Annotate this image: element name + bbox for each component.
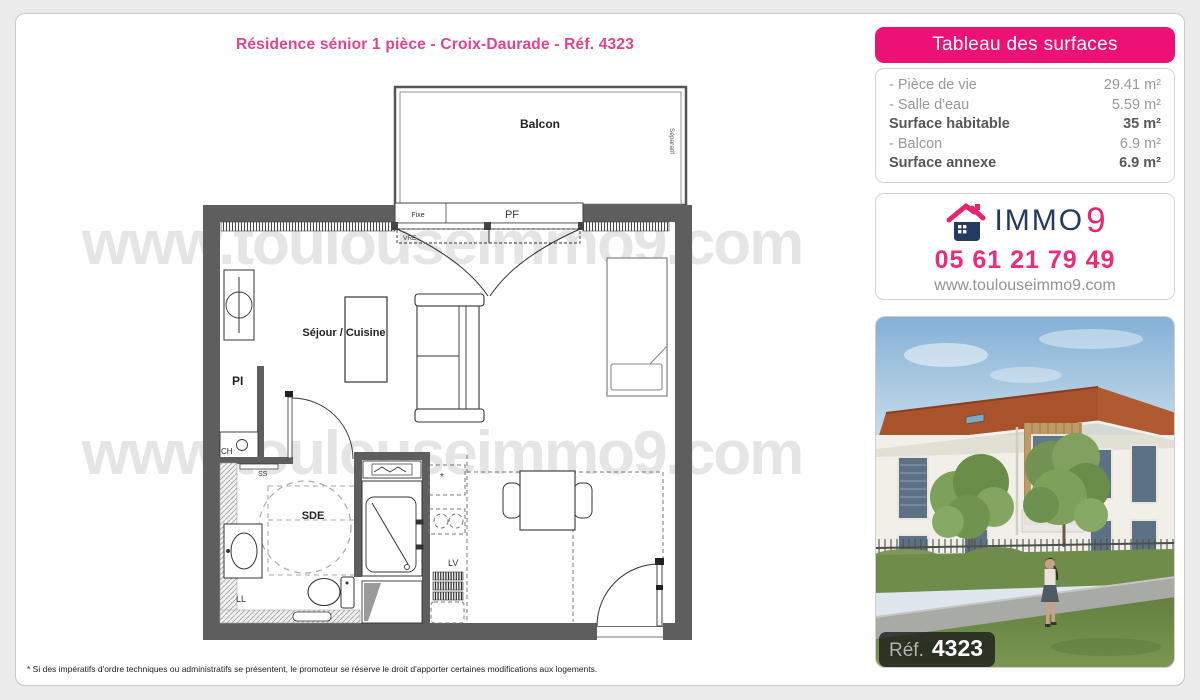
row-value: 6.9 m² <box>1120 135 1161 155</box>
surfaces-header: Tableau des surfaces <box>875 27 1175 63</box>
balcony: Balcon Séparatif <box>395 87 686 205</box>
building-illustration <box>876 317 1175 668</box>
dining-set <box>503 471 592 530</box>
surfaces-table: - Pièce de vie 29.41 m² - Salle d'eau 5.… <box>875 68 1175 183</box>
page-title: Résidence sénior 1 pièce - Croix-Daurade… <box>15 36 855 54</box>
reference-badge: Réf. 4323 <box>879 632 995 667</box>
table-row: - Balcon 6.9 m² <box>876 135 1174 155</box>
table-row-total: Surface annexe 6.9 m² <box>876 154 1174 174</box>
row-label: - Balcon <box>889 135 942 155</box>
balcony-label: Balcon <box>520 117 560 131</box>
partition-sde <box>203 457 293 464</box>
sde-door <box>285 391 353 459</box>
bed <box>607 258 667 396</box>
property-photo[interactable]: Réf. 4323 <box>875 316 1175 668</box>
agency-website: www.toulouseimmo9.com <box>934 277 1115 295</box>
shower <box>362 461 423 623</box>
sde-label: SDE <box>302 510 325 522</box>
row-label: - Salle d'eau <box>889 96 969 116</box>
row-value: 5.59 m² <box>1112 96 1161 116</box>
agency-logo: IMMO9 <box>944 199 1105 243</box>
row-label: - Pièce de vie <box>889 76 977 96</box>
row-value: 6.9 m² <box>1119 154 1161 174</box>
radiator <box>433 572 463 600</box>
entrance-door <box>597 558 664 639</box>
row-value: 35 m² <box>1123 115 1161 135</box>
shelf <box>240 464 278 469</box>
water-heater: CH <box>220 432 258 458</box>
pi-label: PI <box>232 374 243 388</box>
ss-label: SS <box>258 471 268 478</box>
agency-card: IMMO9 05 61 21 79 49 www.toulouseimmo9.c… <box>875 193 1175 300</box>
table-row: - Salle d'eau 5.59 m² <box>876 96 1174 116</box>
fixe-label: Fixe <box>411 212 424 219</box>
bay-window: Fixe PF <box>392 203 584 230</box>
floor-plan: Balcon Séparatif Fixe PF VRE <box>195 80 700 650</box>
vre-label: VRE <box>403 235 417 242</box>
brand-9: 9 <box>1086 201 1105 241</box>
row-label: Surface habitable <box>889 115 1010 135</box>
ref-label: Réf. <box>889 640 924 662</box>
living-label: Séjour / Cuisine <box>302 327 385 339</box>
window-strip-right <box>583 222 669 231</box>
pf-label: PF <box>505 209 519 221</box>
fan-symbol: * <box>440 472 444 483</box>
separator-label: Séparatif <box>668 128 675 154</box>
row-value: 29.41 m² <box>1104 76 1161 96</box>
agency-phone: 05 61 21 79 49 <box>935 246 1116 275</box>
ll-label: LL <box>236 594 246 604</box>
ch-label: CH <box>221 447 233 456</box>
table-row-total: Surface habitable 35 m² <box>876 115 1174 135</box>
immo9-house-icon <box>944 199 990 243</box>
lv-label: LV <box>448 558 458 568</box>
window-strip-left <box>221 222 395 231</box>
table-row: - Pièce de vie 29.41 m² <box>876 76 1174 96</box>
disclaimer-footnote: * Si des impératifs d'ordre techniques o… <box>27 664 597 674</box>
ref-number: 4323 <box>932 635 983 662</box>
row-label: Surface annexe <box>889 154 996 174</box>
brand-immo: IMMO <box>994 204 1084 238</box>
french-doors <box>397 229 580 296</box>
